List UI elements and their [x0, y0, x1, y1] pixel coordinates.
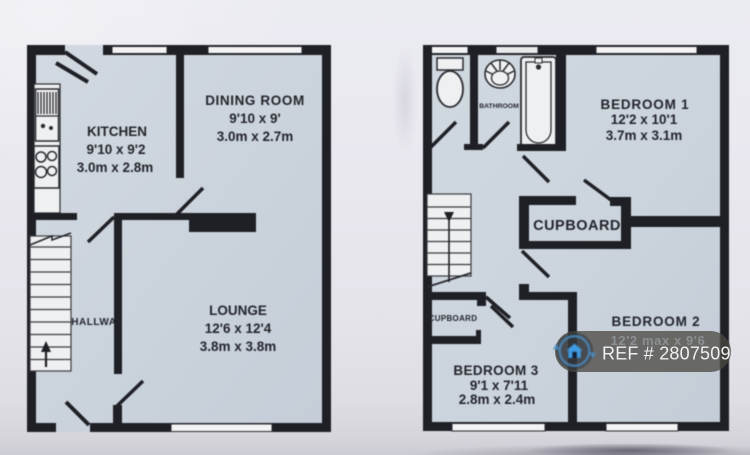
- svg-text:CUPBOARD: CUPBOARD: [429, 314, 478, 323]
- svg-text:9'1 x 7'11: 9'1 x 7'11: [470, 378, 529, 393]
- svg-text:3.0m x 2.7m: 3.0m x 2.7m: [217, 129, 294, 144]
- svg-text:REF # 2807509: REF # 2807509: [602, 344, 731, 364]
- svg-text:KITCHEN: KITCHEN: [87, 124, 147, 139]
- svg-text:2.8m x 2.4m: 2.8m x 2.4m: [459, 392, 536, 407]
- svg-text:BEDROOM 3: BEDROOM 3: [453, 363, 538, 378]
- svg-text:12'2 x 10'1: 12'2 x 10'1: [611, 112, 678, 127]
- svg-text:3.7m x 3.1m: 3.7m x 3.1m: [606, 128, 683, 143]
- svg-text:HALLWAY: HALLWAY: [71, 317, 122, 328]
- svg-text:12'6 x 12'4: 12'6 x 12'4: [205, 321, 272, 336]
- svg-text:BEDROOM 1: BEDROOM 1: [601, 97, 690, 112]
- svg-text:9'10 x 9'2: 9'10 x 9'2: [87, 142, 146, 157]
- svg-text:3.0m x 2.8m: 3.0m x 2.8m: [77, 160, 154, 175]
- svg-text:3.8m x 3.8m: 3.8m x 3.8m: [200, 339, 277, 354]
- svg-text:BATHROOM: BATHROOM: [479, 103, 519, 110]
- svg-text:BEDROOM 2: BEDROOM 2: [612, 314, 701, 329]
- svg-text:LOUNGE: LOUNGE: [209, 303, 267, 318]
- svg-text:9'10 x 9': 9'10 x 9': [229, 111, 280, 126]
- svg-text:CUPBOARD: CUPBOARD: [533, 218, 621, 234]
- svg-text:DINING ROOM: DINING ROOM: [205, 93, 305, 108]
